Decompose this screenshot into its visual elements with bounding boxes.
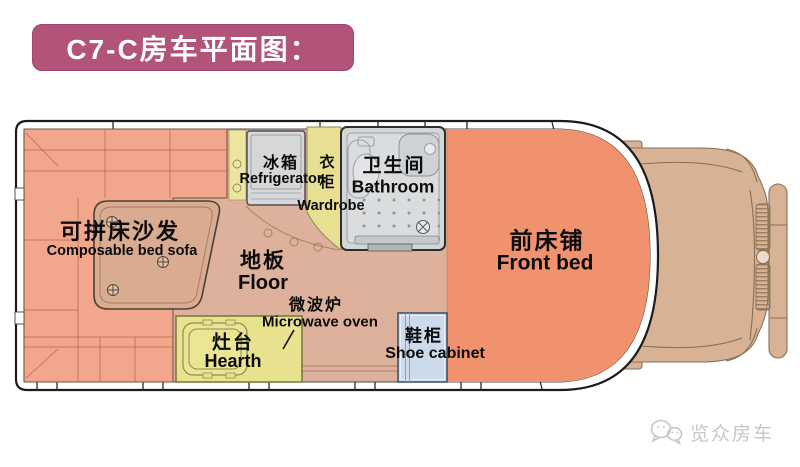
wardrobe-label-en: Wardrobe (297, 199, 364, 214)
sofa-label-zh: 可拼床沙发 (60, 221, 180, 243)
microwave-label-zh: 微波炉 (289, 298, 343, 314)
front-bed-label-en: Front bed (497, 253, 594, 274)
page: C7-C房车平面图： (0, 0, 800, 467)
refrigerator-label-en: Refrigerator (240, 172, 323, 187)
shoe-cabinet-label-en: Shoe cabinet (385, 346, 485, 362)
bathroom-label-zh: 卫生间 (362, 157, 425, 176)
sofa-label-en: Composable bed sofa (47, 244, 198, 259)
front-bed-label-zh: 前床铺 (510, 230, 585, 253)
wardrobe-label-zh: 衣柜 (319, 154, 334, 194)
microwave-label-en: Microwave oven (262, 315, 378, 330)
hearth-label-zh: 灶台 (212, 334, 254, 353)
wechat-icon (648, 417, 684, 447)
watermark-brand: 览众房车 (690, 419, 774, 446)
hinge-detail-upper (15, 188, 24, 200)
bathroom-threshold (368, 244, 412, 251)
hearth-label-en: Hearth (204, 352, 261, 370)
floor-label-zh: 地板 (240, 251, 286, 272)
bathroom-label-en: Bathroom (352, 178, 435, 196)
shoe-cabinet-label-zh: 鞋柜 (405, 328, 443, 345)
grille (756, 204, 770, 310)
watermark: 览众房车 (648, 417, 774, 447)
bathroom-drain-screw (417, 221, 430, 234)
floor-label-en: Floor (238, 273, 288, 293)
counter-strip (229, 130, 246, 200)
hinge-detail-lower (15, 312, 24, 324)
refrigerator-label-zh: 冰箱 (263, 156, 299, 172)
brand-emblem (757, 251, 770, 264)
front-bumper (769, 184, 787, 358)
bathroom-step (355, 236, 439, 244)
